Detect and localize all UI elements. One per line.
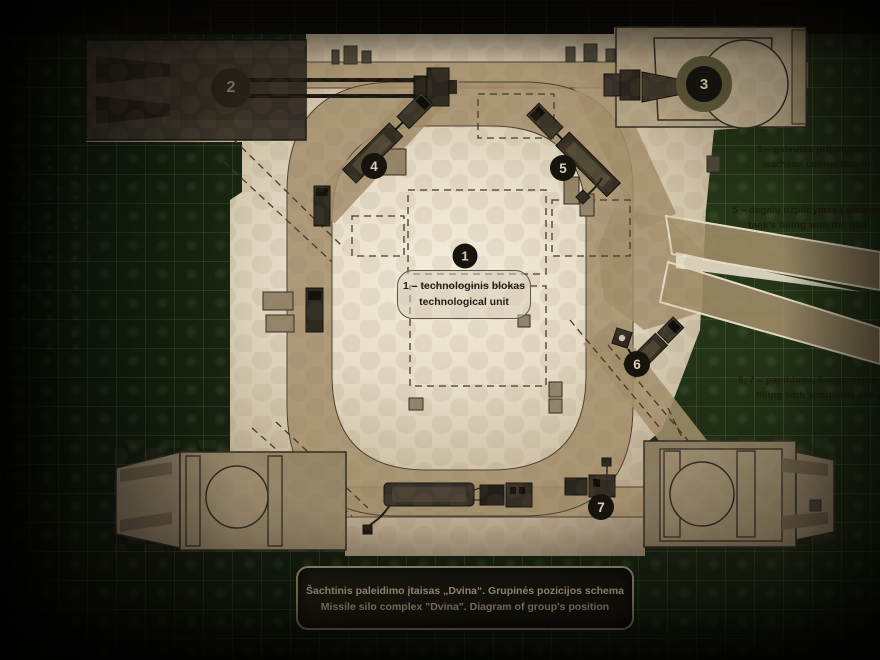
marker-5: 5 — [550, 155, 576, 181]
caption-plaque: Šachtinis paleidimo įtaisas „Dvina“. Gru… — [296, 566, 634, 630]
center-label-lt: 1 – technologinis blokas — [398, 279, 530, 295]
legend-item-6-7-en: filling with additional components — [706, 388, 880, 403]
legend-item-3-en: warhead connection to the missile — [714, 157, 880, 172]
caption-english: Missile silo complex "Dvina". Diagram of… — [298, 601, 632, 614]
legend-item-5-en: tank's filling with the fuel — [720, 218, 880, 233]
marker-6: 6 — [624, 351, 650, 377]
legend-item-3: 3 – galvutės prijungimas prie raketos wa… — [714, 142, 880, 172]
silo-complex-diagram — [0, 0, 880, 660]
legend-item-5-lt: 5 – degalų užpildymas į sistemą — [720, 203, 880, 218]
marker-3: 3 — [676, 56, 732, 112]
legend-item-5: 5 – degalų užpildymas į sistemą tank's f… — [720, 203, 880, 233]
legend-item-3-lt: 3 – galvutės prijungimas prie raketos — [714, 142, 880, 157]
photo-of-diagram-panel: 1 2 3 4 5 6 7 1 – technologinis blokas t… — [0, 0, 880, 660]
marker-1: 1 — [453, 244, 478, 269]
center-label: 1 – technologinis blokas technological u… — [397, 270, 531, 319]
legend-item-6-7-lt: 6, 7 – papildomų komponentų užpildymas — [706, 373, 880, 388]
caption-lithuanian: Šachtinis paleidimo įtaisas „Dvina“. Gru… — [298, 582, 632, 601]
marker-2: 2 — [211, 68, 251, 108]
legend-item-6-7: 6, 7 – papildomų komponentų užpildymas f… — [706, 373, 880, 403]
center-label-en: technological unit — [398, 295, 530, 311]
marker-4: 4 — [361, 153, 387, 179]
marker-7: 7 — [588, 494, 614, 520]
